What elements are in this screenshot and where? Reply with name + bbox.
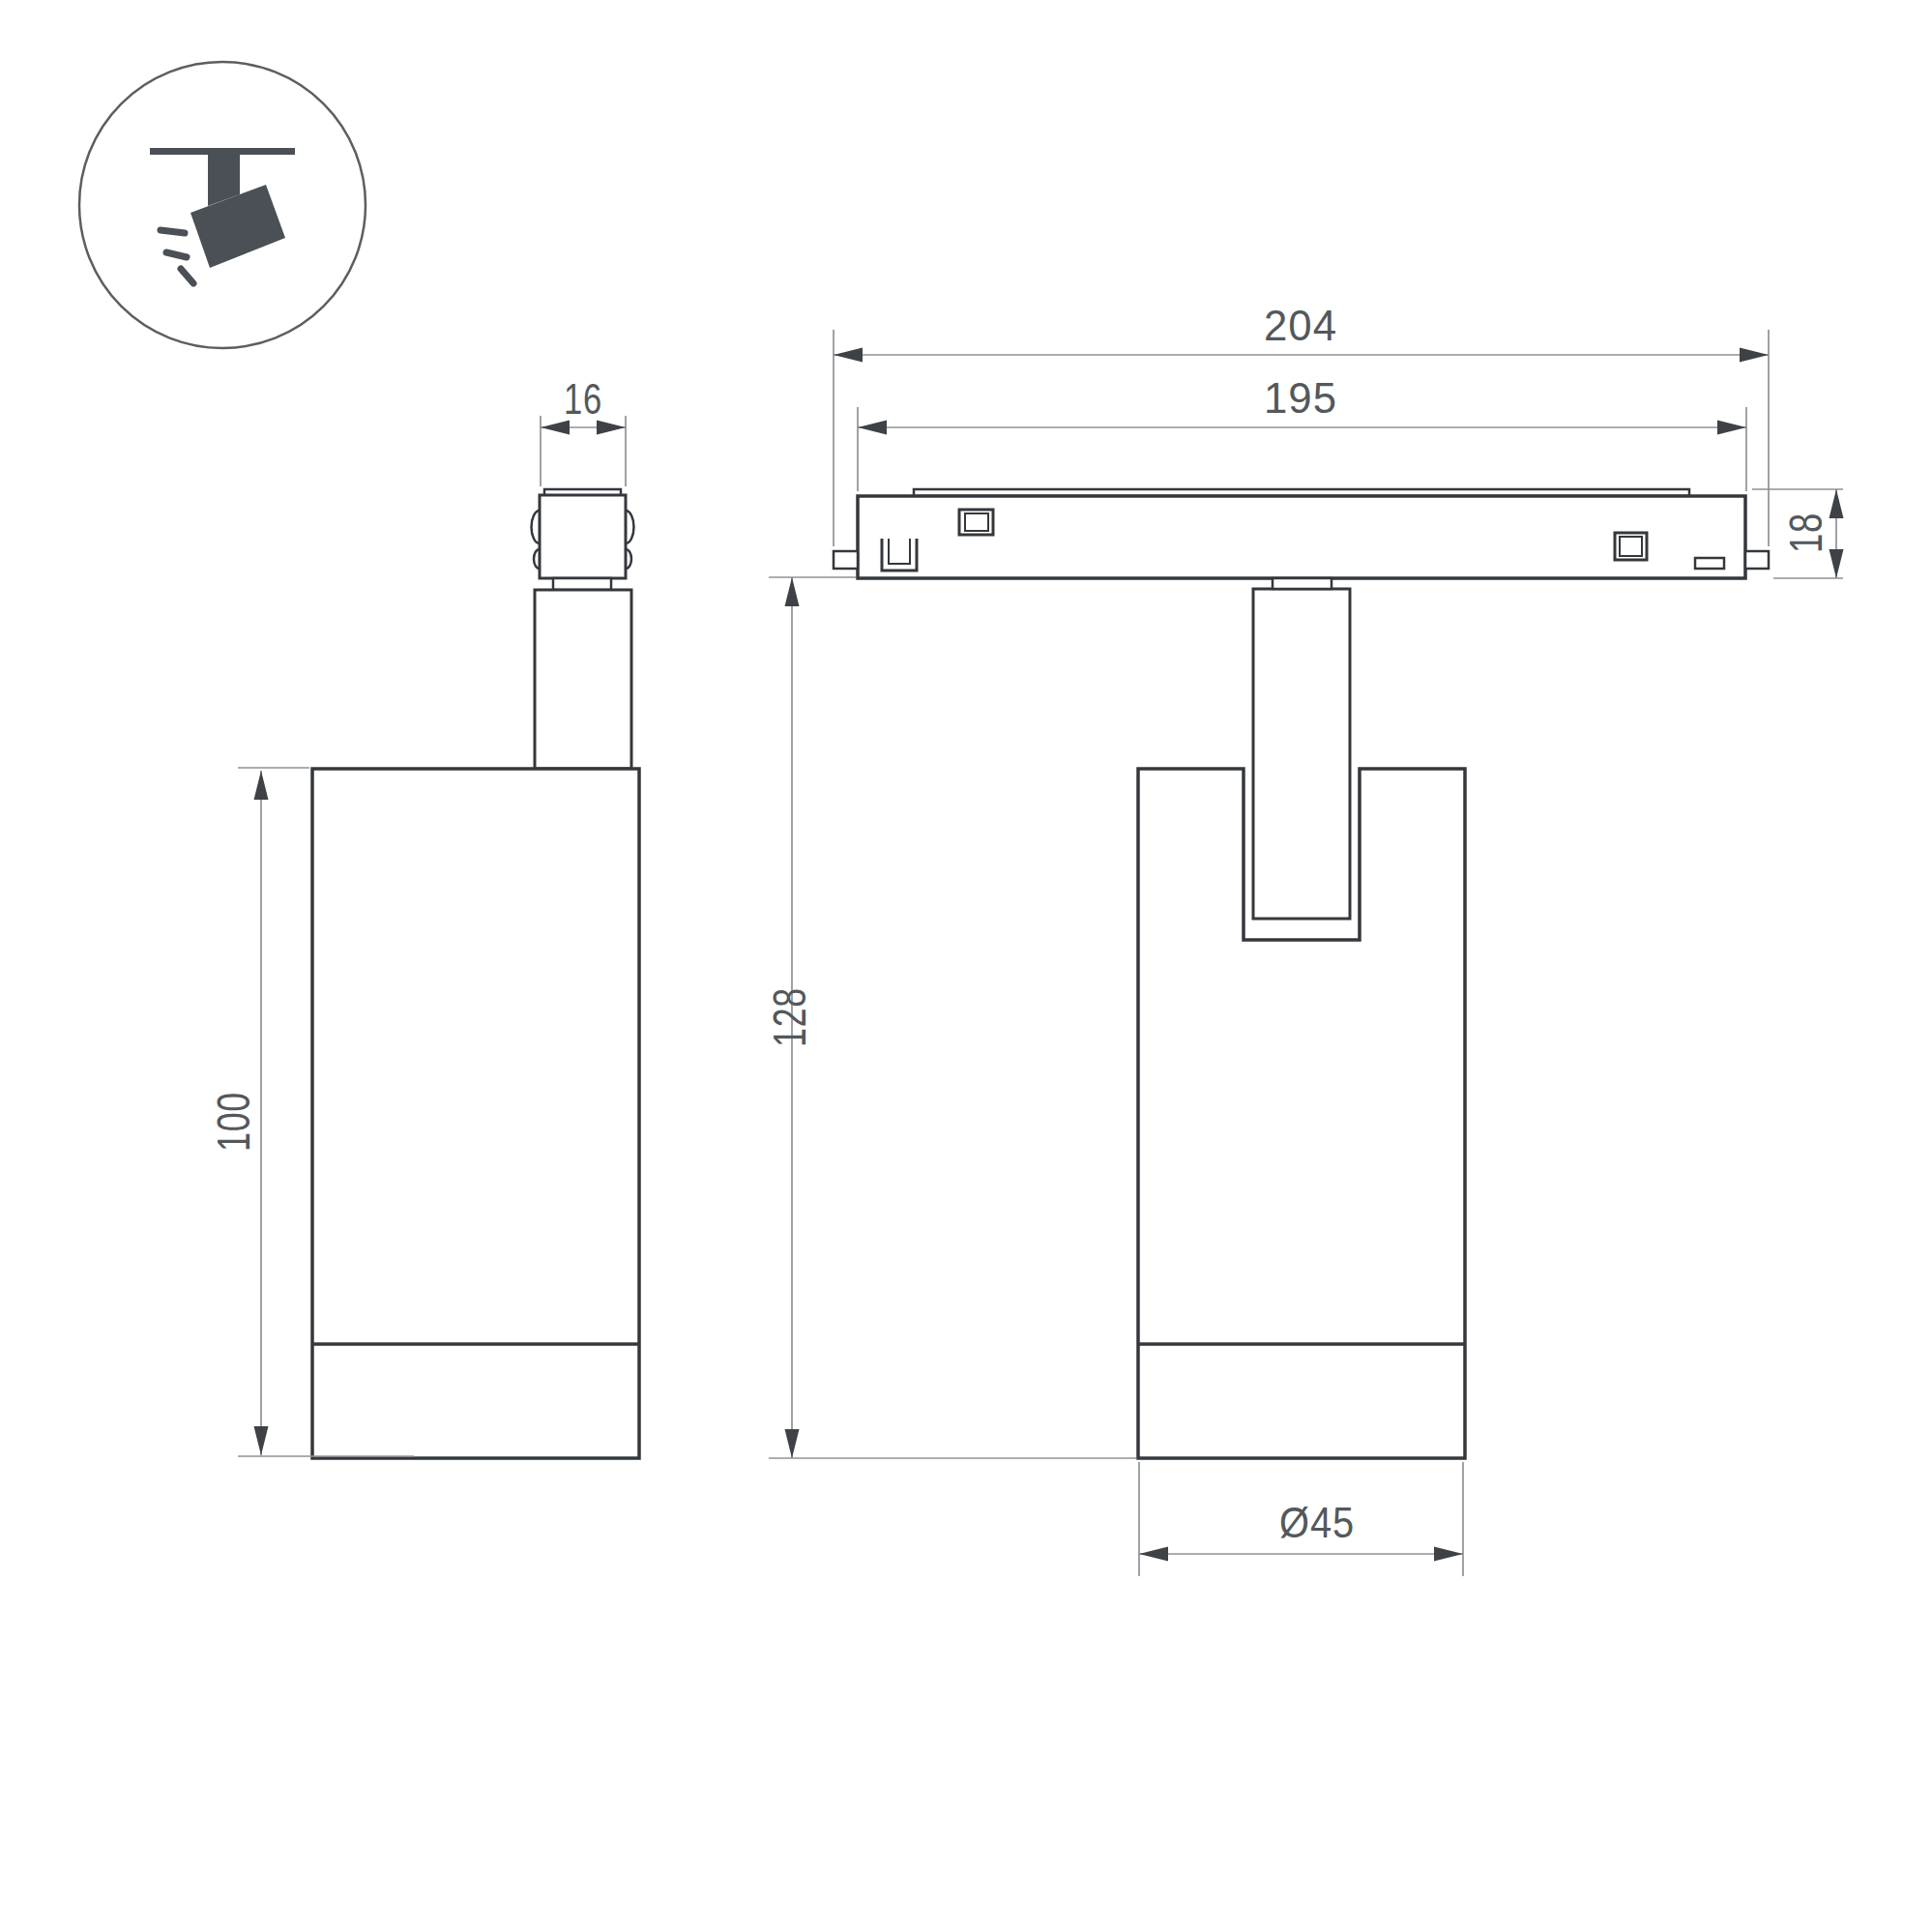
dim-label-204: 204 [1264, 302, 1337, 349]
drawing-svg: 16 100 204 195 [0, 0, 1932, 1932]
front-view [834, 489, 1769, 1458]
dim-track-inner: 195 [858, 374, 1746, 491]
spotlight-icon [79, 62, 366, 348]
adapter-neck [553, 578, 611, 590]
side-body [312, 769, 639, 1458]
side-stem [535, 590, 631, 769]
front-stem [1253, 589, 1350, 919]
side-view [312, 489, 639, 1458]
dim-adapter-width: 16 [541, 375, 626, 486]
track-right-tab [1745, 551, 1769, 569]
dim-body-diameter: Ø45 [1139, 1462, 1463, 1576]
dim-label-128: 128 [764, 987, 815, 1047]
dim-label-195: 195 [1264, 374, 1337, 422]
icon-light-ray [161, 230, 185, 233]
dim-overall-height: 128 [764, 577, 1136, 1458]
dim-label-diameter: Ø45 [1279, 1499, 1355, 1546]
technical-drawing-page: 16 100 204 195 [0, 0, 1932, 1932]
adapter-block [540, 495, 626, 578]
track-left-tab [834, 551, 858, 569]
front-stem-nub [1273, 578, 1332, 589]
dim-label-18: 18 [1780, 512, 1831, 553]
track-slot-small [1695, 558, 1724, 569]
icon-light-ray [166, 252, 187, 257]
dim-label-16: 16 [564, 375, 602, 423]
dim-label-100: 100 [208, 1092, 259, 1152]
